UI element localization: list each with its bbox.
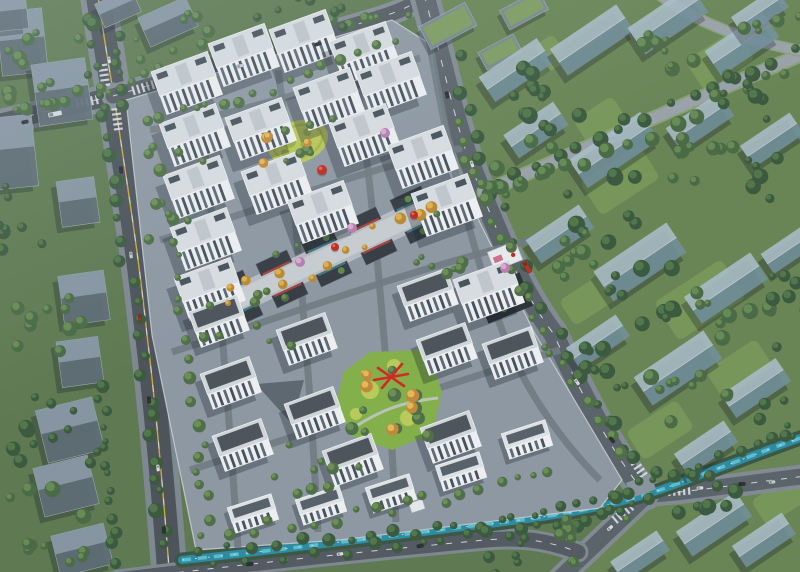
atmosphere-layer — [0, 0, 800, 572]
aerial-masterplan-render — [0, 0, 800, 572]
atmospheric-haze — [0, 0, 800, 572]
residential-complex-aerial-view — [0, 0, 800, 572]
